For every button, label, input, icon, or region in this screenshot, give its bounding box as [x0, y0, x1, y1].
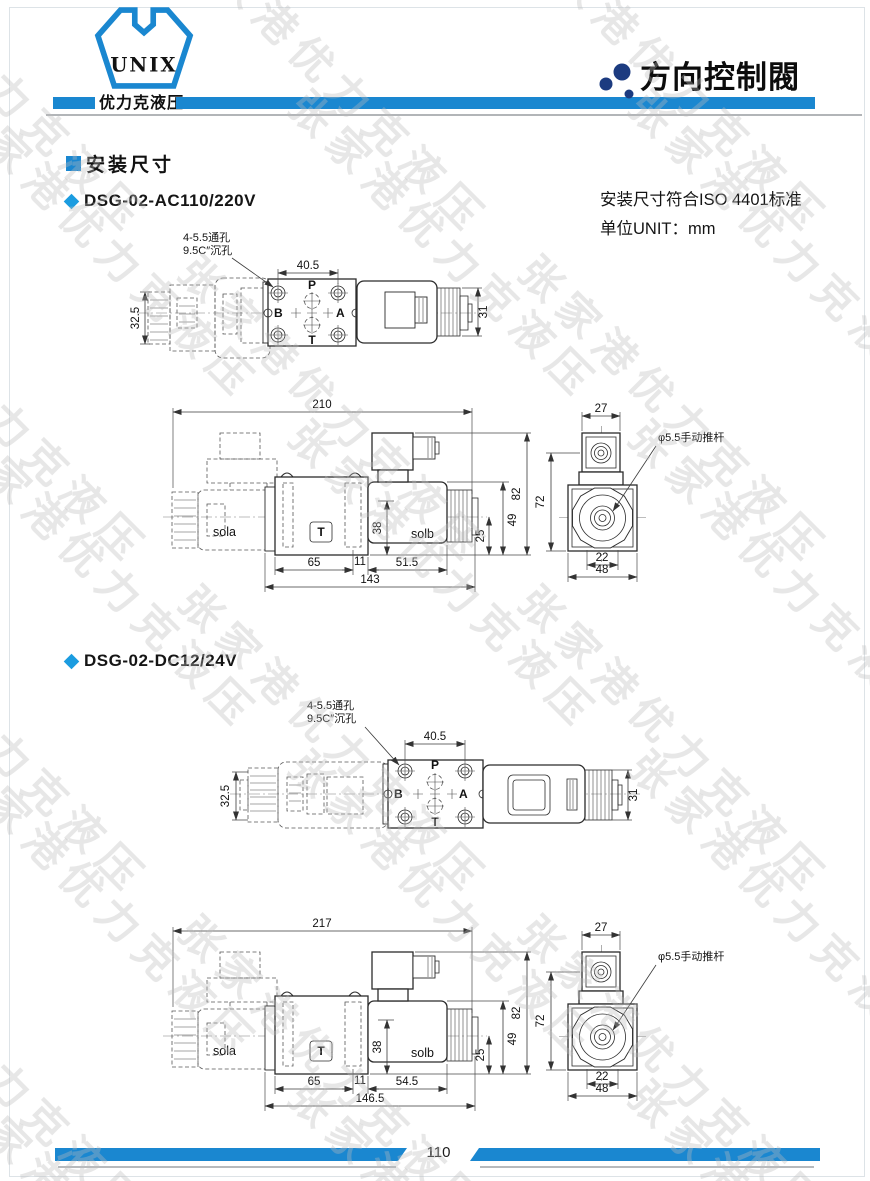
port-b-label: B	[394, 787, 403, 801]
dim-label: 48	[596, 564, 609, 576]
dim-label: 217	[312, 918, 331, 930]
dim-label: 143	[360, 574, 379, 586]
title-dots-icon	[596, 60, 640, 102]
diamond-icon	[64, 193, 80, 209]
model1-end-view: 27 φ5.5手动推杆 72 22 48	[535, 403, 724, 582]
dim-label: 38	[372, 1041, 384, 1054]
dim-label: 210	[312, 399, 331, 411]
footer-bar-left	[55, 1148, 407, 1161]
dim-label: 25	[475, 530, 487, 543]
solb-label: solb	[411, 527, 434, 541]
dim-label: 72	[535, 1015, 547, 1028]
dim-label: 54.5	[396, 1076, 418, 1088]
hole-note-line2: 9.5C″沉孔	[307, 712, 356, 725]
page-number: 110	[407, 1144, 470, 1161]
port-t-label: T	[431, 815, 439, 829]
unix-logo: UNIX	[92, 6, 196, 90]
dim-label: 38	[372, 522, 384, 535]
dim-label: 27	[595, 403, 608, 415]
dim-label: 27	[595, 922, 608, 934]
dim-label: 40.5	[424, 731, 446, 743]
dim-label: 25	[475, 1049, 487, 1062]
drawing-model1: P T B A 40.5 4-5.5通孔 9.5C″沉孔	[123, 228, 870, 620]
model2-top-view: P T B A 40.5 4-5.5通孔 9.5C″沉孔 32.5	[220, 699, 643, 829]
dim-label: 11	[354, 1075, 366, 1087]
dim-label: 22	[596, 552, 609, 564]
hole-note-line1: 4-5.5通孔	[183, 231, 230, 244]
pin-note: φ5.5手动推杆	[658, 430, 724, 444]
brand-name: 优力克液压	[99, 89, 184, 113]
sola-label: sola	[213, 1044, 236, 1058]
model2-front-view: 217 sola T solb	[163, 918, 531, 1111]
brand-bar-main	[176, 97, 815, 109]
port-b-label: B	[274, 306, 283, 320]
header-rule	[46, 114, 862, 116]
diamond-icon	[64, 653, 80, 669]
footer-bar-right	[470, 1148, 820, 1161]
footer-rule-left	[58, 1166, 396, 1168]
model1-top-view: P T B A 40.5 4-5.5通孔 9.5C″沉孔	[130, 231, 490, 358]
dim-label: 31	[478, 306, 490, 319]
t-port-label: T	[317, 1044, 325, 1058]
brand-bar-left	[53, 97, 95, 109]
footer-rule-right	[480, 1166, 814, 1168]
dim-label: 32.5	[220, 785, 232, 807]
blue-square-icon	[66, 156, 81, 171]
dim-label: 72	[535, 496, 547, 509]
drawing-model2: P T B A 40.5 4-5.5通孔 9.5C″沉孔 32.5	[135, 695, 870, 1135]
dim-label: 65	[308, 557, 321, 569]
dim-label: 65	[308, 1076, 321, 1088]
dim-label: 48	[596, 1083, 609, 1095]
port-p-label: P	[308, 278, 316, 292]
model2-end-view: 27 φ5.5手动推杆 72 22 48	[535, 922, 724, 1101]
t-port-label: T	[317, 525, 325, 539]
model1-front-view: 210 sola T solb	[163, 399, 531, 592]
iso-note: 安装尺寸符合ISO 4401标准	[600, 186, 802, 215]
dim-label: 32.5	[130, 307, 142, 329]
hole-note-line2: 9.5C″沉孔	[183, 244, 232, 257]
hole-note-line1: 4-5.5通孔	[307, 699, 354, 712]
model1-heading: DSG-02-AC110/220V	[66, 191, 256, 211]
sola-label: sola	[213, 525, 236, 539]
section-heading: 安装尺寸	[66, 150, 174, 177]
page-title: 方向控制閥	[640, 52, 860, 97]
dim-label: 11	[354, 556, 366, 568]
port-a-label: A	[336, 306, 345, 320]
dim-label: 40.5	[297, 260, 319, 272]
port-p-label: P	[431, 758, 439, 772]
dim-label: 31	[628, 789, 640, 802]
pin-note: φ5.5手动推杆	[658, 949, 724, 963]
dim-label: 82	[511, 1007, 523, 1020]
dim-label: 82	[511, 488, 523, 501]
model2-name: DSG-02-DC12/24V	[84, 651, 237, 671]
dim-label: 146.5	[356, 1093, 385, 1105]
model1-name: DSG-02-AC110/220V	[84, 191, 256, 211]
section-title: 安装尺寸	[86, 150, 174, 177]
port-t-label: T	[308, 333, 316, 347]
dim-label: 49	[507, 514, 519, 527]
model2-heading: DSG-02-DC12/24V	[66, 651, 237, 671]
port-a-label: A	[459, 787, 468, 801]
dim-label: 49	[507, 1033, 519, 1046]
logo-text: UNIX	[110, 54, 177, 77]
solb-label: solb	[411, 1046, 434, 1060]
catalog-page: UNIX 优力克液压 方向控制閥 安装尺寸 DSG-02-AC110/220V …	[0, 0, 870, 1181]
dim-label: 22	[596, 1071, 609, 1083]
dim-label: 51.5	[396, 557, 418, 569]
